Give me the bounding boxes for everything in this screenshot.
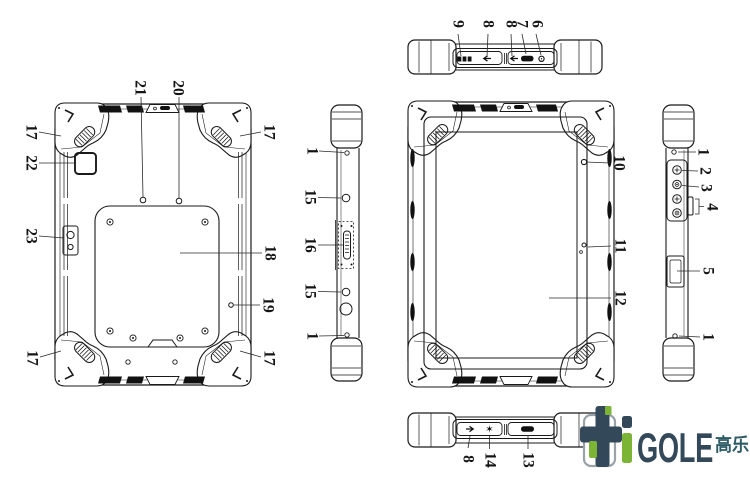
callout-1: 1 xyxy=(700,333,717,341)
front-body-inner-line xyxy=(413,107,609,381)
leader-line xyxy=(588,246,611,247)
side-tab xyxy=(688,197,693,215)
sensor-dot xyxy=(580,251,583,254)
vent-grille-icon xyxy=(458,57,472,62)
leader-line xyxy=(468,436,470,448)
right-edge-view: 1 2 3 4 5 1 xyxy=(663,105,721,381)
callout-4: 4 xyxy=(704,203,721,211)
usb-arrow-icon xyxy=(511,56,518,61)
screw xyxy=(130,335,136,341)
callout-10: 10 xyxy=(611,155,628,171)
bottom-edge-body xyxy=(408,413,602,447)
leader-line xyxy=(682,186,699,188)
callout-13: 13 xyxy=(520,452,537,468)
flash-module xyxy=(63,226,78,255)
leader-line xyxy=(682,171,698,172)
top-edge-view: 9 8 8 7 6 xyxy=(408,20,602,74)
callout-19: 19 xyxy=(260,297,277,313)
screw xyxy=(177,335,183,341)
sensor-dot xyxy=(582,243,586,247)
edge-screw-hole xyxy=(672,150,676,154)
volume-down-button xyxy=(673,209,682,218)
usb-arrow-icon xyxy=(484,56,491,61)
left-edge-body xyxy=(331,105,362,381)
callout-23: 23 xyxy=(23,228,40,244)
battery-cover xyxy=(95,206,219,347)
bottom-edge-band xyxy=(98,377,205,385)
rear-mic-hole xyxy=(229,303,234,308)
back-body-inner-line xyxy=(60,109,246,380)
cover-latch-notch xyxy=(148,340,177,347)
round-button xyxy=(673,180,682,189)
callout-2: 2 xyxy=(697,167,714,175)
callout-5: 5 xyxy=(700,267,717,275)
leader-line xyxy=(511,34,512,56)
corner-bumper xyxy=(197,332,251,386)
case-screw-hole xyxy=(126,360,130,364)
callout-8: 8 xyxy=(480,20,497,28)
leader-line xyxy=(586,162,610,163)
callout-15: 15 xyxy=(302,283,319,299)
top-edge-band xyxy=(98,105,205,113)
edge-screw-hole xyxy=(345,151,349,155)
front-camera-dot xyxy=(581,159,586,164)
callout-1: 1 xyxy=(695,148,712,156)
center-divider xyxy=(505,424,507,435)
card-door xyxy=(667,256,684,287)
side-grip-marks xyxy=(410,149,611,321)
top-edge-band xyxy=(452,104,558,112)
usb-arrow-icon xyxy=(466,426,473,431)
front-view: 10 11 12 xyxy=(408,101,629,387)
back-view: 17 22 23 21 20 17 18 19 17 17 xyxy=(23,80,279,386)
pill-port-icon xyxy=(521,426,534,432)
logo-cross-horizontal xyxy=(580,427,622,443)
leader-line xyxy=(318,292,341,293)
callout-18: 18 xyxy=(262,245,279,261)
callout-9: 9 xyxy=(450,20,467,28)
callout-6: 6 xyxy=(529,20,546,28)
volume-up-button xyxy=(673,195,682,204)
rear-dot xyxy=(140,197,146,203)
drawing-canvas: 9 8 8 7 6 xyxy=(0,0,750,478)
bottom-edge-view: ✶ 8 14 13 xyxy=(408,413,602,468)
callout-14: 14 xyxy=(482,452,499,468)
logo-h-glyph xyxy=(580,406,622,467)
right-edge-body xyxy=(663,105,694,381)
leader-line xyxy=(487,34,488,56)
logo-cjk: 高乐 xyxy=(715,434,749,456)
logo-green-tip xyxy=(605,406,612,415)
round-port xyxy=(340,303,352,315)
callout-1: 1 xyxy=(304,332,321,340)
logo-word: GOLE xyxy=(637,424,713,471)
callout-3: 3 xyxy=(698,184,715,192)
screw xyxy=(202,219,208,225)
callout-22: 22 xyxy=(23,155,40,171)
round-key xyxy=(342,194,350,202)
rear-dot xyxy=(176,198,182,204)
side-rails xyxy=(64,152,242,336)
callout-20: 20 xyxy=(170,80,187,96)
callout-17: 17 xyxy=(261,350,278,366)
power-button xyxy=(673,166,682,175)
screw xyxy=(107,328,113,334)
screen xyxy=(436,132,577,358)
leader-line xyxy=(319,151,344,153)
logo-letter-i xyxy=(622,416,632,463)
leader-line xyxy=(679,336,700,337)
rear-camera-window xyxy=(75,153,96,174)
callout-11: 11 xyxy=(612,239,629,254)
leader-line xyxy=(318,198,341,199)
callout-16: 16 xyxy=(302,237,319,253)
front-bezel xyxy=(424,117,587,369)
higole-logo: GOLE 高乐 xyxy=(580,406,749,471)
edge-screw-hole xyxy=(345,333,349,337)
left-edge-view: 1 15 16 15 1 xyxy=(302,105,363,381)
callout-8: 8 xyxy=(460,455,477,463)
bottom-edge-band xyxy=(452,377,558,385)
callout-7: 7 xyxy=(514,20,531,28)
top-edge-body xyxy=(408,40,602,74)
logo-green-bar xyxy=(589,441,597,458)
round-key xyxy=(342,288,350,296)
screw xyxy=(202,328,208,334)
leader-line xyxy=(319,336,344,337)
star-icon: ✶ xyxy=(485,425,493,436)
callout-17: 17 xyxy=(261,124,278,140)
callout-17: 17 xyxy=(23,124,40,140)
center-divider xyxy=(505,53,507,64)
pill-port-icon xyxy=(521,56,534,62)
case-screw-hole xyxy=(173,360,177,364)
callout-17: 17 xyxy=(24,350,41,366)
callout-21: 21 xyxy=(132,80,149,96)
callout-1: 1 xyxy=(304,147,321,155)
corner-bumper xyxy=(197,103,251,157)
button-panel xyxy=(667,160,693,221)
leader-line xyxy=(458,34,461,56)
callout-12: 12 xyxy=(612,290,629,306)
bracket-leader xyxy=(695,199,704,214)
callout-15: 15 xyxy=(302,189,319,205)
screw xyxy=(107,219,113,225)
